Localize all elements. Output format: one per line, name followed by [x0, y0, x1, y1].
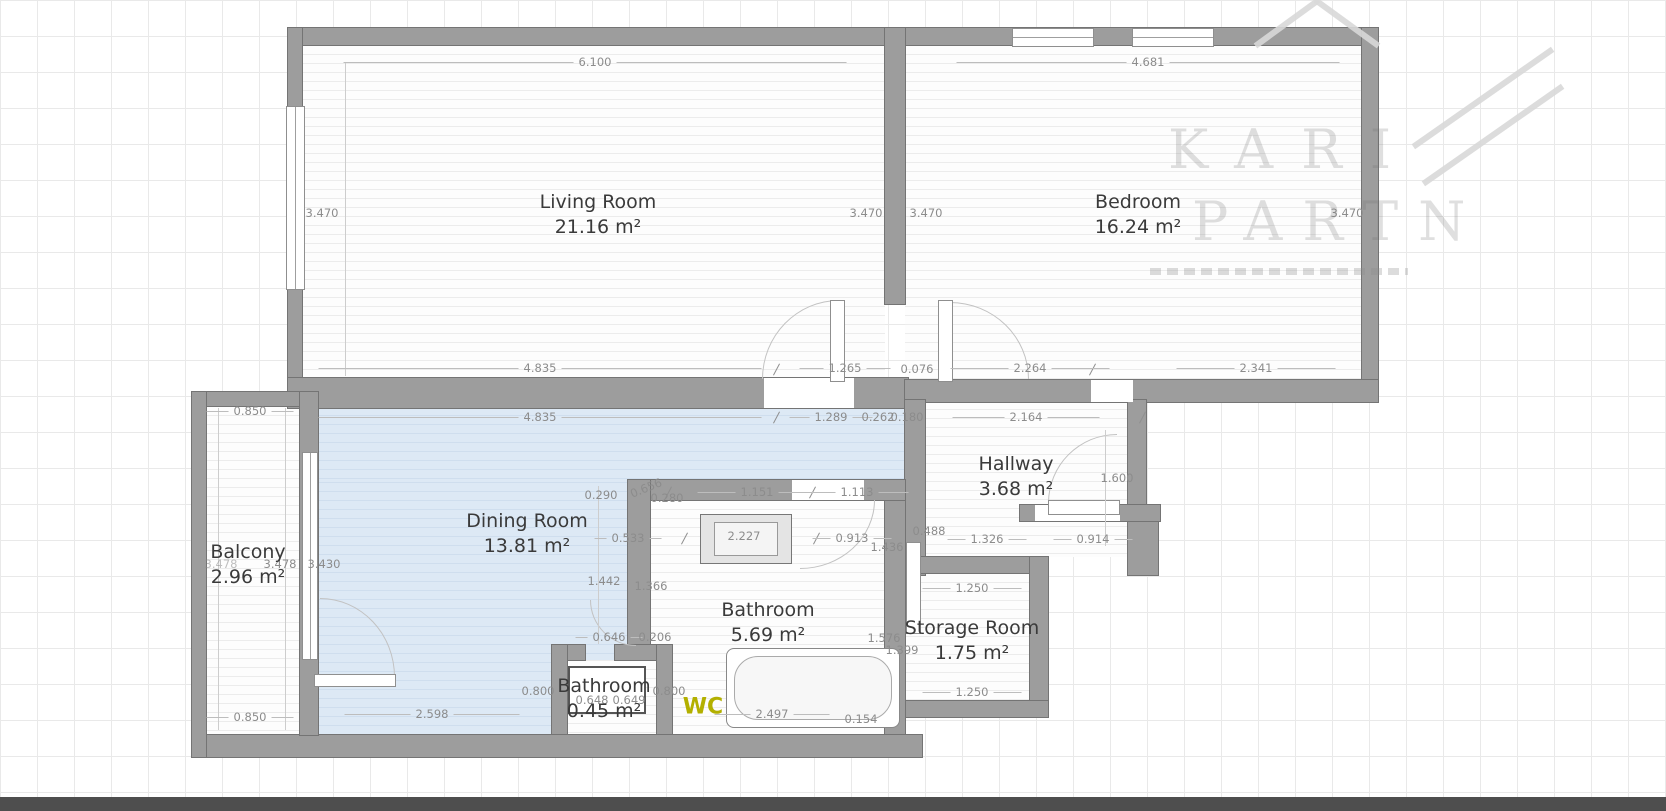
dim-bath-mid-a: 0.533 [595, 531, 662, 545]
living-room-window [286, 106, 305, 290]
dim-guide-line [345, 62, 346, 376]
dim-smallbath-right: 0.800 [653, 684, 686, 698]
balcony-door-leaf [314, 674, 396, 687]
dim-bath-low-b: 0.206 [639, 630, 672, 644]
dim-dining-bottom: 2.598 [345, 707, 520, 721]
dim-bedroom-right: 3.470 [1331, 206, 1364, 220]
wall-bedroom-bottom [905, 380, 1378, 402]
wall-top [288, 28, 1378, 45]
dim-hall-niche-b: 0.180 [891, 410, 924, 424]
room-area-bathroom: 5.69 m² [721, 623, 814, 648]
room-name-bedroom: Bedroom [1095, 190, 1182, 215]
dim-living-right: 3.470 [850, 206, 883, 220]
room-name-small-bathroom: Bathroom [557, 674, 650, 699]
room-label-bedroom: Bedroom 16.24 m² [1095, 190, 1182, 240]
wall-bottom [192, 735, 922, 757]
room-name-living: Living Room [540, 190, 657, 215]
bedroom-door-opening [1091, 380, 1133, 402]
watermark-house-outline [1412, 47, 1555, 149]
dim-hallway-b: 1.326 [948, 532, 1027, 546]
wall-storage-top [905, 557, 1048, 573]
room-area-storage: 1.75 m² [905, 641, 1039, 666]
wall-balcony-left [192, 392, 206, 757]
dim-tub-edge: 0.154 [845, 712, 878, 726]
dim-bath-mid-c: 1.436 [871, 540, 904, 554]
dim-hall-niche-a: 0.262 [862, 410, 895, 424]
room-name-balcony: Balcony [210, 540, 285, 565]
dim-smallbath-left: 0.800 [522, 684, 555, 698]
room-name-storage: Storage Room [905, 616, 1039, 641]
dim-dining-top: 4.835 [319, 410, 762, 424]
room-area-balcony: 2.96 m² [210, 565, 285, 590]
room-name-bathroom: Bathroom [721, 598, 814, 623]
dim-guide-line [1105, 430, 1106, 546]
dim-bath-top-a: 1.151 [698, 485, 817, 499]
dim-hallway-top: 2.164 [953, 410, 1100, 424]
dim-storage-bottom: 1.250 [923, 685, 1022, 699]
room-area-bedroom: 16.24 m² [1095, 215, 1182, 240]
dim-living-top: 6.100 [344, 55, 847, 69]
room-label-bathroom: Bathroom 5.69 m² [721, 598, 814, 648]
dim-bath-niche-a: 0.290 [585, 488, 618, 502]
dim-bath-top-b: 1.113 [806, 485, 909, 499]
hallway-door-leaf [1048, 500, 1120, 515]
room-label-hallway: Hallway 3.68 m² [979, 452, 1054, 502]
dim-bedroom-left: 3.470 [910, 206, 943, 220]
room-area-living: 21.16 m² [540, 215, 657, 240]
watermark-house-outline [1422, 84, 1565, 186]
room-label-living: Living Room 21.16 m² [540, 190, 657, 240]
dim-bedroom-top: 4.681 [957, 55, 1340, 69]
dim-guide-line [598, 486, 599, 644]
room-area-small-bathroom: 0.45 m² [557, 699, 650, 724]
dim-vanity-width: 2.227 [728, 529, 761, 543]
dim-hallway-right: 1.600 [1101, 471, 1134, 485]
dim-bedroom-offset: 0.076 [901, 362, 934, 376]
dim-tub-width: 2.497 [715, 707, 830, 721]
room-name-dining: Dining Room [466, 509, 587, 534]
bedroom-window-1 [1012, 28, 1094, 47]
dim-dining-door: 1.289 [790, 410, 873, 424]
dim-bedroom-bottom-right: 2.341 [1177, 361, 1336, 375]
wall-storage-bottom [905, 701, 1048, 717]
dim-hallway-c: 0.914 [1054, 532, 1133, 546]
dim-living-door: 1.265 [800, 361, 891, 375]
room-label-small-bathroom: Bathroom 0.45 m² [557, 674, 650, 724]
bottom-bar [0, 797, 1666, 811]
wc-label: WC [683, 695, 723, 720]
living-door-opening [764, 378, 854, 408]
dim-balcony-bottom: 0.850 [207, 710, 294, 724]
dim-bath-left-a: 1.442 [588, 574, 621, 588]
room-name-hallway: Hallway [979, 452, 1054, 477]
room-label-balcony: Balcony 2.96 m² [210, 540, 285, 590]
dim-hallway-a: 0.488 [913, 524, 946, 538]
dim-dining-left: 3.430 [308, 557, 341, 571]
floor-plan-canvas: 6.100 4.681 3.470 3.470 3.470 3.470 4.83… [0, 0, 1666, 811]
dim-storage-top: 1.250 [923, 581, 1022, 595]
dim-balcony-top: 0.850 [207, 404, 294, 418]
dim-bath-niche-c: 0.280 [651, 491, 684, 505]
dim-bedroom-bottom-left: 2.264 [951, 361, 1110, 375]
wall-right [1362, 28, 1378, 402]
room-area-dining: 13.81 m² [466, 534, 587, 559]
wall-divider-living-bedroom [885, 28, 905, 304]
room-label-dining: Dining Room 13.81 m² [466, 509, 587, 559]
dim-living-left: 3.470 [306, 206, 339, 220]
dim-bath-left-b: 1.366 [635, 579, 668, 593]
balcony-window [302, 452, 318, 660]
room-label-storage: Storage Room 1.75 m² [905, 616, 1039, 666]
bedroom-window-2 [1132, 28, 1214, 47]
room-area-hallway: 3.68 m² [979, 477, 1054, 502]
dim-bath-low-a: 0.646 [576, 630, 643, 644]
dim-living-bottom: 4.835 [319, 361, 762, 375]
